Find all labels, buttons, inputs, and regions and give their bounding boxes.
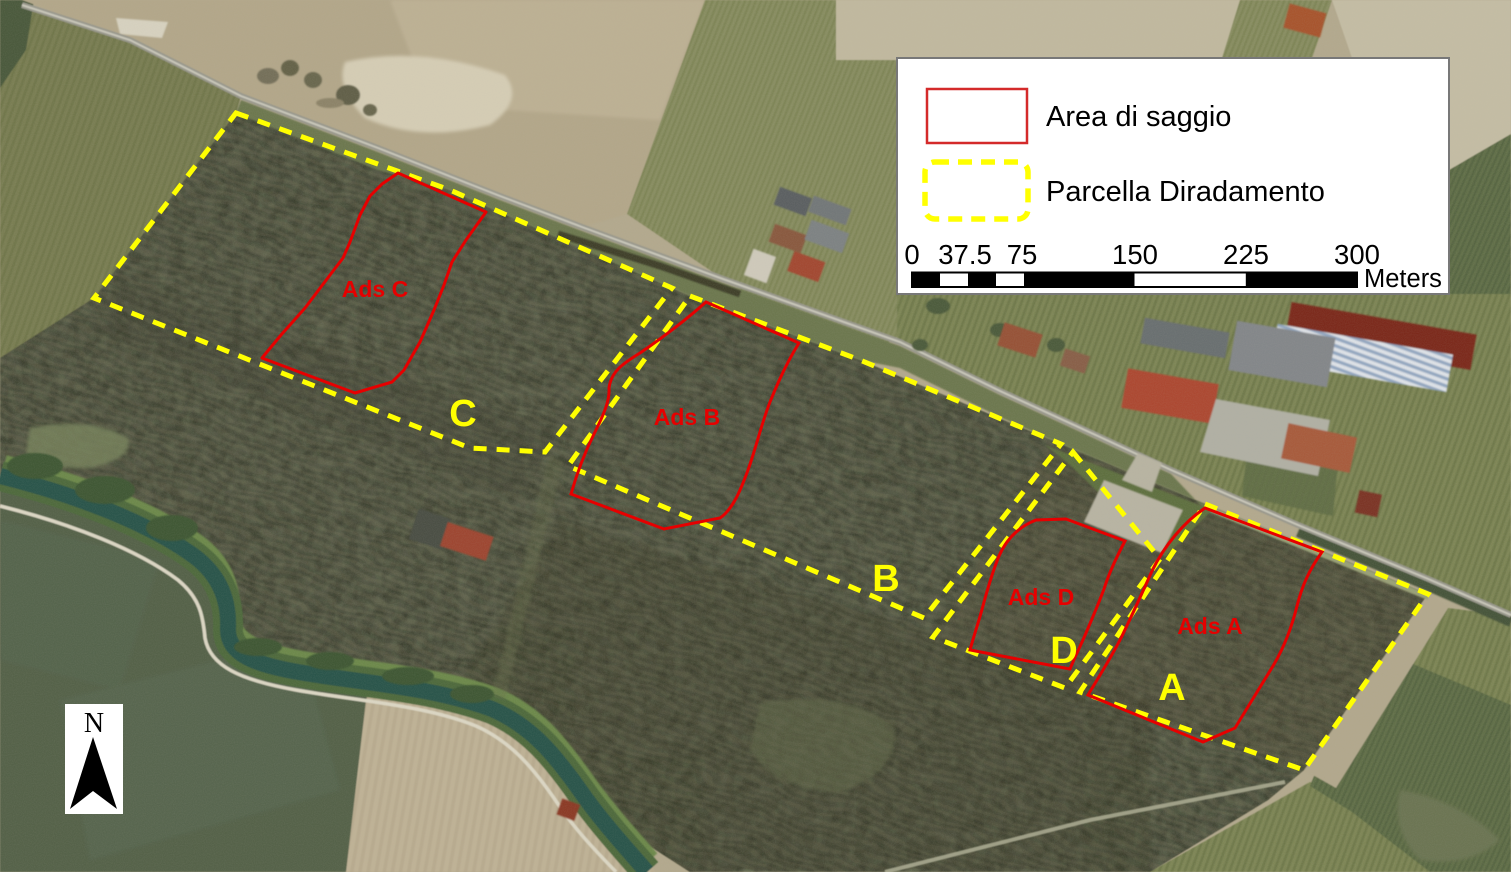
svg-text:Ads C: Ads C — [342, 276, 408, 302]
svg-text:Ads D: Ads D — [1008, 584, 1074, 610]
svg-text:B: B — [872, 558, 899, 600]
svg-text:150: 150 — [1112, 239, 1158, 270]
svg-text:Area di saggio: Area di saggio — [1046, 101, 1231, 133]
svg-text:N: N — [84, 708, 104, 739]
svg-text:C: C — [449, 393, 476, 435]
svg-text:D: D — [1050, 630, 1077, 672]
svg-text:75: 75 — [1007, 239, 1038, 270]
svg-text:37.5: 37.5 — [938, 239, 992, 270]
svg-text:0: 0 — [904, 239, 919, 270]
svg-text:Parcella Diradamento: Parcella Diradamento — [1046, 176, 1325, 208]
svg-text:Ads B: Ads B — [654, 404, 720, 430]
svg-text:Ads A: Ads A — [1177, 613, 1243, 639]
svg-text:Meters: Meters — [1364, 265, 1442, 293]
svg-text:A: A — [1158, 667, 1185, 709]
svg-text:225: 225 — [1223, 239, 1269, 270]
